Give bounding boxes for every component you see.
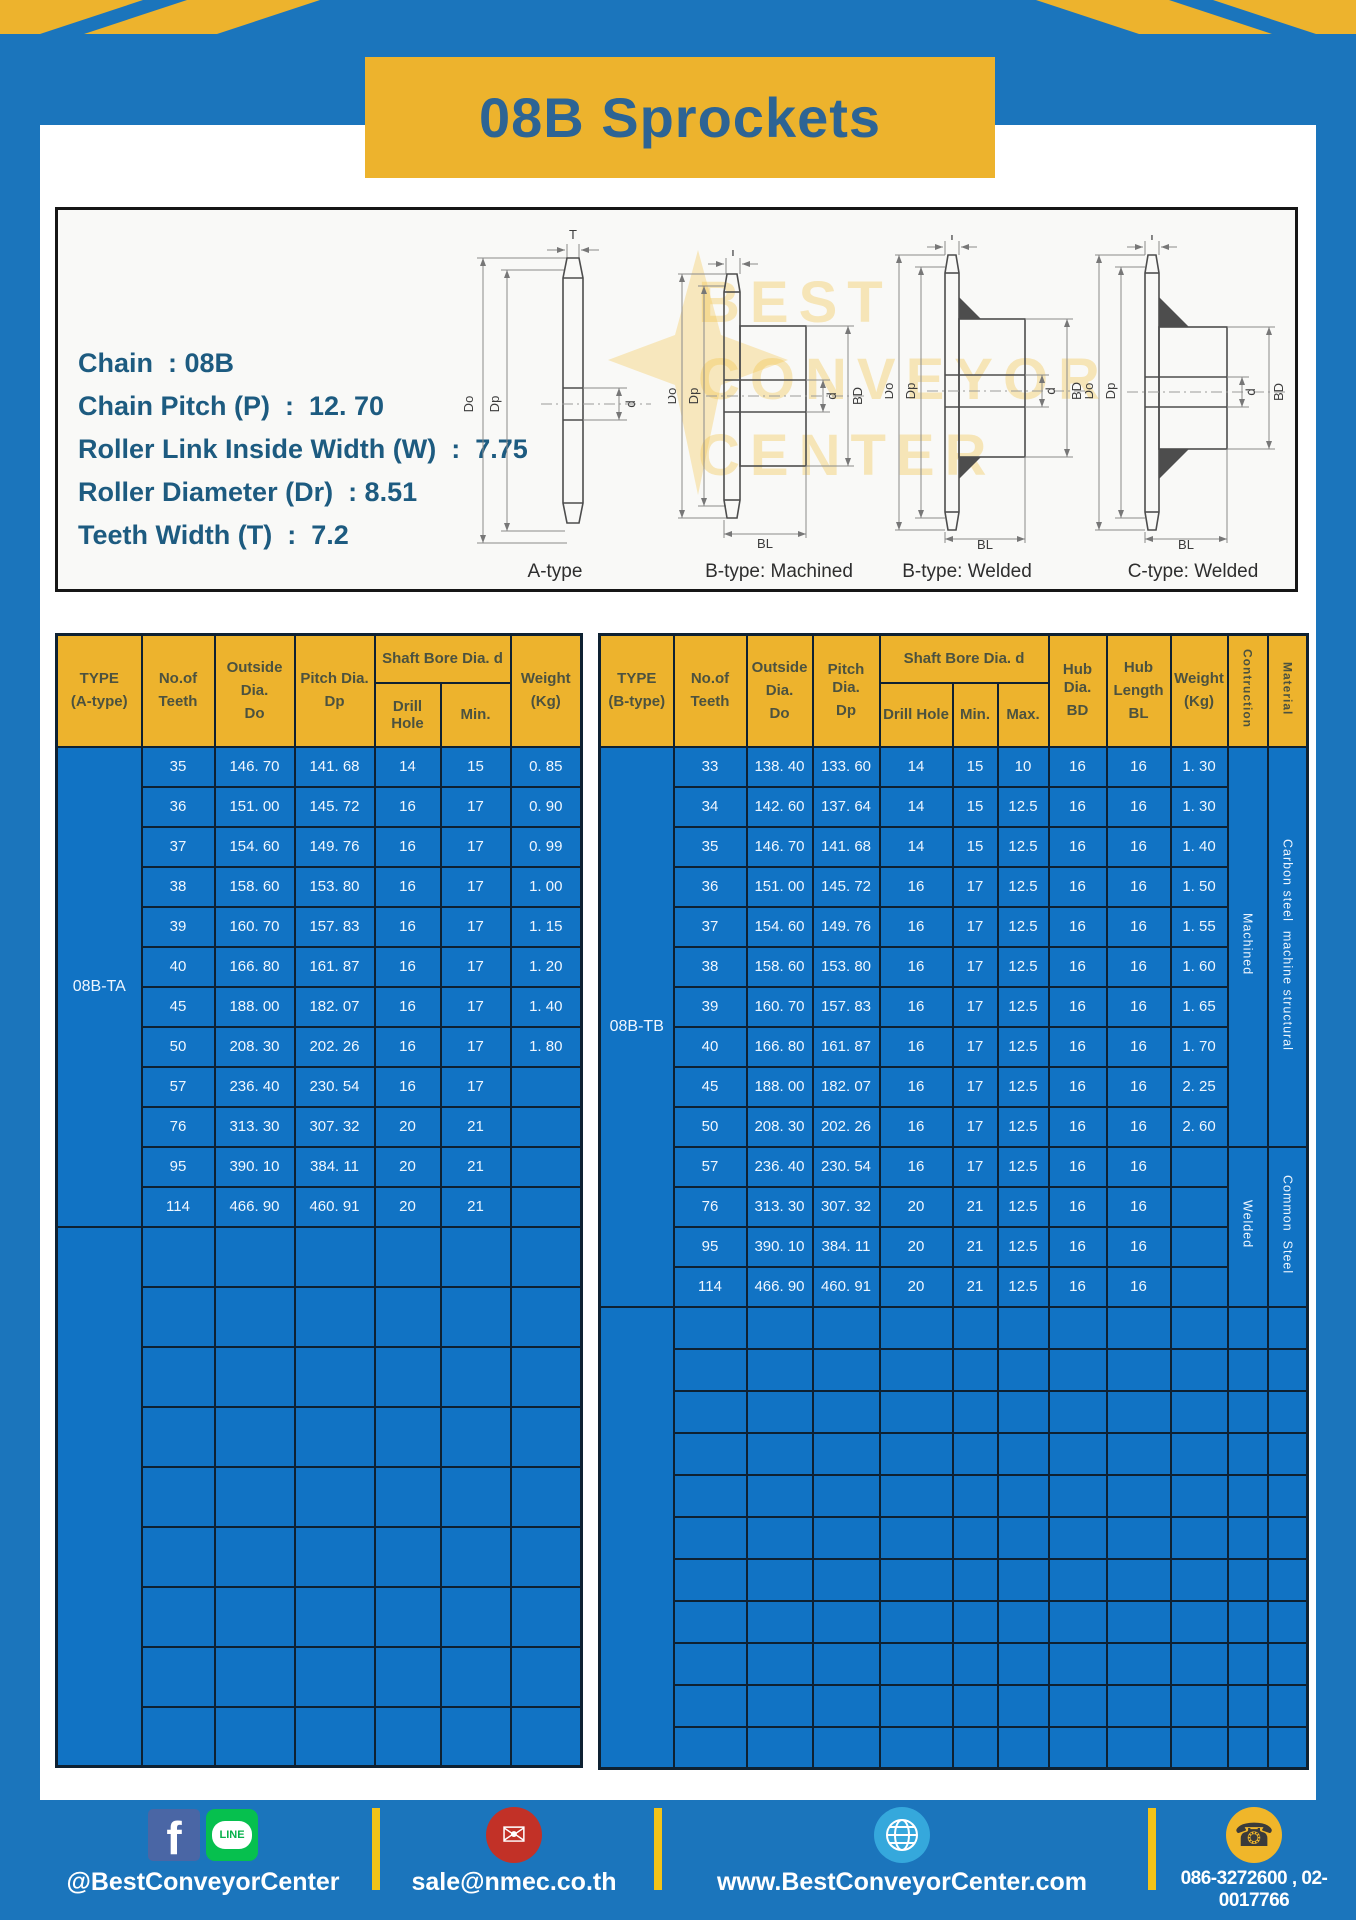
cell: 182. 07 — [813, 1067, 880, 1107]
empty-cell — [953, 1433, 998, 1475]
empty-cell — [295, 1407, 375, 1467]
caption-c-welded: C-type: Welded — [1108, 561, 1278, 583]
cell: 16 — [1049, 1147, 1107, 1187]
cell: 40 — [674, 1027, 747, 1067]
empty-cell — [1171, 1391, 1228, 1433]
empty-cell — [215, 1587, 295, 1647]
cell: 154. 60 — [747, 907, 813, 947]
cell: 390. 10 — [747, 1227, 813, 1267]
sprocket-drawing-c-welded: Do Dp T d BD BL — [1085, 235, 1300, 550]
cell: 16 — [1107, 1267, 1171, 1307]
cell: 45 — [142, 987, 215, 1027]
empty-cell — [880, 1517, 953, 1559]
empty-row — [600, 1601, 1308, 1643]
page-canvas: 08B Sprockets BEST CONVEYOR CENTER Chain… — [0, 0, 1356, 1920]
cell: 0. 99 — [511, 827, 582, 867]
material-cell: Common Steel — [1268, 1147, 1308, 1307]
cell: 16 — [375, 1027, 441, 1067]
cell: 16 — [1107, 867, 1171, 907]
empty-cell — [511, 1587, 582, 1647]
cell: 21 — [441, 1187, 511, 1227]
empty-cell — [1171, 1685, 1228, 1727]
empty-cell — [747, 1475, 813, 1517]
empty-cell — [375, 1467, 441, 1527]
table-b-container: TYPE(B-type) No.ofTeeth OutsideDia.Do Pi… — [598, 633, 1309, 1770]
cell: 16 — [1049, 907, 1107, 947]
empty-cell — [953, 1643, 998, 1685]
title-banner: 08B Sprockets — [365, 57, 995, 178]
cell: 16 — [1049, 747, 1107, 787]
sprocket-drawing-a-type: Do Dp T d — [455, 228, 685, 553]
empty-cell — [747, 1517, 813, 1559]
empty-row — [600, 1559, 1308, 1601]
empty-row — [600, 1433, 1308, 1475]
cell: 236. 40 — [747, 1147, 813, 1187]
page-title: 08B Sprockets — [479, 85, 881, 150]
empty-cell — [142, 1647, 215, 1707]
cell: 236. 40 — [215, 1067, 295, 1107]
empty-cell — [674, 1643, 747, 1685]
svg-text:BL: BL — [757, 536, 773, 550]
empty-cell — [1268, 1643, 1308, 1685]
empty-cell — [813, 1307, 880, 1349]
svg-text:d: d — [824, 392, 839, 399]
empty-cell — [953, 1349, 998, 1391]
cell: 16 — [880, 1107, 953, 1147]
empty-cell — [1171, 1643, 1228, 1685]
svg-text:T: T — [729, 250, 737, 259]
footer-phone-section: ☎ 086-3272600 , 02-0017766 — [1152, 1806, 1356, 1912]
empty-cell — [441, 1527, 511, 1587]
cell: 149. 76 — [295, 827, 375, 867]
cell: 16 — [375, 907, 441, 947]
cell: 17 — [953, 907, 998, 947]
cell: 17 — [441, 987, 511, 1027]
cell: 16 — [375, 1067, 441, 1107]
cell: 16 — [1049, 827, 1107, 867]
cell: 40 — [142, 947, 215, 987]
empty-cell — [880, 1307, 953, 1349]
empty-cell — [441, 1287, 511, 1347]
empty-row — [57, 1227, 582, 1287]
cell: 17 — [953, 1107, 998, 1147]
social-handle: @BestConveyorCenter — [40, 1868, 366, 1897]
type-label-cell: 08B-TB — [600, 747, 674, 1307]
cell: 12.5 — [998, 1067, 1049, 1107]
empty-cell — [511, 1467, 582, 1527]
empty-cell — [511, 1707, 582, 1767]
cell: 20 — [375, 1147, 441, 1187]
empty-cell — [1268, 1307, 1308, 1349]
cell: 16 — [880, 1147, 953, 1187]
cell: 188. 00 — [747, 1067, 813, 1107]
cell: 137. 64 — [813, 787, 880, 827]
cell: 35 — [142, 747, 215, 787]
empty-cell — [813, 1349, 880, 1391]
empty-cell — [880, 1391, 953, 1433]
empty-cell — [1171, 1517, 1228, 1559]
footer-divider — [654, 1808, 662, 1890]
empty-cell — [511, 1407, 582, 1467]
col-header-pitch-dia: Pitch Dia.Dp — [813, 635, 880, 747]
col-header-type: TYPE(A-type) — [57, 635, 142, 747]
empty-cell — [1171, 1349, 1228, 1391]
cell: 202. 26 — [813, 1107, 880, 1147]
empty-cell — [511, 1647, 582, 1707]
cell: 16 — [1107, 787, 1171, 827]
empty-cell — [215, 1347, 295, 1407]
cell: 161. 87 — [813, 1027, 880, 1067]
cell: 76 — [142, 1107, 215, 1147]
cell: 16 — [1049, 1027, 1107, 1067]
caption-b-machined: B-type: Machined — [689, 561, 869, 583]
cell: 16 — [375, 787, 441, 827]
cell: 16 — [1107, 947, 1171, 987]
phone-numbers: 086-3272600 , 02-0017766 — [1152, 1868, 1356, 1912]
cell: 154. 60 — [215, 827, 295, 867]
footer-website-section: www.BestConveyorCenter.com — [662, 1806, 1142, 1897]
empty-cell — [674, 1307, 747, 1349]
cell: 16 — [1107, 1147, 1171, 1187]
empty-cell — [1107, 1643, 1171, 1685]
empty-cell — [953, 1559, 998, 1601]
empty-cell — [511, 1287, 582, 1347]
cell: 16 — [1049, 787, 1107, 827]
empty-cell — [1228, 1685, 1268, 1727]
corner-stripes — [0, 0, 1356, 40]
cell: 37 — [674, 907, 747, 947]
empty-cell — [813, 1475, 880, 1517]
cell: 12.5 — [998, 1107, 1049, 1147]
cell: 34 — [674, 787, 747, 827]
svg-text:T: T — [1148, 235, 1156, 243]
cell: 16 — [1107, 1107, 1171, 1147]
empty-cell — [295, 1587, 375, 1647]
cell: 16 — [1107, 747, 1171, 787]
cell: 17 — [441, 827, 511, 867]
empty-cell — [375, 1707, 441, 1767]
empty-cell — [142, 1407, 215, 1467]
table-row: 34142. 60137. 64141512.516161. 30 — [600, 787, 1308, 827]
cell: 35 — [674, 827, 747, 867]
cell: 16 — [1049, 947, 1107, 987]
empty-cell — [1268, 1601, 1308, 1643]
col-header-shaft-bore: Shaft Bore Dia. d — [375, 635, 511, 683]
cell — [1171, 1267, 1228, 1307]
empty-cell — [1049, 1685, 1107, 1727]
table-row: 08B-TB33138. 40133. 6014151016161. 30Mac… — [600, 747, 1308, 787]
empty-cell — [295, 1707, 375, 1767]
cell: 12.5 — [998, 827, 1049, 867]
col-header-min: Min. — [441, 683, 511, 747]
col-header-weight: Weight(Kg) — [1171, 635, 1228, 747]
cell: 1. 55 — [1171, 907, 1228, 947]
empty-cell — [674, 1475, 747, 1517]
empty-cell — [998, 1601, 1049, 1643]
empty-cell — [674, 1349, 747, 1391]
cell: 1. 80 — [511, 1027, 582, 1067]
caption-a-type: A-type — [485, 561, 625, 583]
empty-row — [600, 1391, 1308, 1433]
cell: 16 — [880, 987, 953, 1027]
cell: 33 — [674, 747, 747, 787]
empty-cell — [998, 1517, 1049, 1559]
cell: 12.5 — [998, 1227, 1049, 1267]
header-row: TYPE(A-type) No.ofTeeth OutsideDia.Do Pi… — [57, 635, 582, 683]
construction-cell: Machined — [1228, 747, 1268, 1147]
email-address: sale@nmec.co.th — [380, 1868, 648, 1897]
col-header-teeth: No.ofTeeth — [142, 635, 215, 747]
empty-cell — [1268, 1727, 1308, 1769]
cell: 160. 70 — [747, 987, 813, 1027]
cell: 166. 80 — [747, 1027, 813, 1067]
empty-cell — [674, 1433, 747, 1475]
empty-cell — [880, 1559, 953, 1601]
cell: 158. 60 — [215, 867, 295, 907]
material-cell: Carbon steel machine structural — [1268, 747, 1308, 1147]
empty-cell — [998, 1643, 1049, 1685]
empty-cell — [998, 1685, 1049, 1727]
cell: 166. 80 — [215, 947, 295, 987]
cell: 16 — [880, 907, 953, 947]
cell: 151. 00 — [215, 787, 295, 827]
cell — [1171, 1227, 1228, 1267]
empty-cell — [142, 1527, 215, 1587]
empty-cell — [375, 1227, 441, 1287]
cell — [1171, 1187, 1228, 1227]
cell: 16 — [880, 867, 953, 907]
empty-cell — [215, 1647, 295, 1707]
cell: 95 — [674, 1227, 747, 1267]
cell: 230. 54 — [813, 1147, 880, 1187]
empty-cell — [747, 1433, 813, 1475]
cell: 16 — [375, 867, 441, 907]
empty-cell — [880, 1643, 953, 1685]
cell: 157. 83 — [813, 987, 880, 1027]
empty-cell — [747, 1307, 813, 1349]
empty-cell — [295, 1227, 375, 1287]
empty-cell — [142, 1707, 215, 1767]
empty-cell — [295, 1647, 375, 1707]
empty-cell — [747, 1601, 813, 1643]
cell: 188. 00 — [215, 987, 295, 1027]
empty-cell — [813, 1727, 880, 1769]
empty-cell — [1049, 1601, 1107, 1643]
cell: 16 — [1107, 1227, 1171, 1267]
cell: 39 — [674, 987, 747, 1027]
footer-bar: f LINE @BestConveyorCenter ✉ sale@nmec.c… — [0, 1800, 1356, 1920]
empty-cell — [747, 1559, 813, 1601]
cell: 10 — [998, 747, 1049, 787]
empty-cell — [747, 1685, 813, 1727]
empty-cell — [441, 1227, 511, 1287]
empty-cell — [813, 1517, 880, 1559]
cell: 0. 85 — [511, 747, 582, 787]
cell: 1. 15 — [511, 907, 582, 947]
table-row: 35146. 70141. 68141512.516161. 40 — [600, 827, 1308, 867]
empty-cell — [953, 1685, 998, 1727]
cell: 2. 25 — [1171, 1067, 1228, 1107]
empty-cell — [1049, 1517, 1107, 1559]
svg-text:BD: BD — [1069, 382, 1084, 400]
cell: 12.5 — [998, 787, 1049, 827]
empty-row — [600, 1307, 1308, 1349]
empty-cell — [441, 1647, 511, 1707]
empty-cell — [1268, 1475, 1308, 1517]
empty-cell — [1107, 1685, 1171, 1727]
svg-text:BL: BL — [977, 537, 993, 550]
cell: 114 — [142, 1187, 215, 1227]
phone-icon[interactable]: ☎ — [1226, 1807, 1282, 1863]
cell: 20 — [880, 1267, 953, 1307]
cell: 16 — [375, 947, 441, 987]
empty-cell — [1107, 1727, 1171, 1769]
empty-cell — [953, 1727, 998, 1769]
empty-cell — [142, 1587, 215, 1647]
cell: 466. 90 — [747, 1267, 813, 1307]
table-row: 76313. 30307. 32202112.51616 — [600, 1187, 1308, 1227]
empty-cell — [953, 1475, 998, 1517]
cell: 20 — [880, 1187, 953, 1227]
empty-cell — [142, 1347, 215, 1407]
empty-cell — [1228, 1601, 1268, 1643]
empty-cell — [1107, 1307, 1171, 1349]
cell: 17 — [441, 787, 511, 827]
email-icon[interactable]: ✉ — [486, 1807, 542, 1863]
line-icon[interactable]: LINE — [206, 1809, 258, 1861]
cell: 17 — [441, 1027, 511, 1067]
cell: 1. 40 — [1171, 827, 1228, 867]
cell: 313. 30 — [215, 1107, 295, 1147]
empty-cell — [215, 1227, 295, 1287]
cell: 208. 30 — [747, 1107, 813, 1147]
cell: 20 — [375, 1107, 441, 1147]
cell: 182. 07 — [295, 987, 375, 1027]
empty-cell — [674, 1559, 747, 1601]
empty-cell — [1228, 1433, 1268, 1475]
empty-cell — [215, 1407, 295, 1467]
svg-text:BD: BD — [850, 387, 865, 405]
cell: 16 — [1107, 1027, 1171, 1067]
col-header-max: Max. — [998, 683, 1049, 747]
cell: 230. 54 — [295, 1067, 375, 1107]
empty-cell — [1049, 1475, 1107, 1517]
cell: 466. 90 — [215, 1187, 295, 1227]
empty-cell — [1171, 1601, 1228, 1643]
type-label-cell: 08B-TA — [57, 747, 142, 1227]
table-row: 114466. 90460. 91202112.51616 — [600, 1267, 1308, 1307]
empty-cell — [1171, 1307, 1228, 1349]
cell: 1. 30 — [1171, 787, 1228, 827]
cell: 1. 60 — [1171, 947, 1228, 987]
cell: 0. 90 — [511, 787, 582, 827]
globe-icon[interactable] — [874, 1807, 930, 1863]
empty-row — [600, 1685, 1308, 1727]
empty-cell — [1171, 1475, 1228, 1517]
cell: 14 — [375, 747, 441, 787]
col-header-pitch-dia: Pitch Dia.Dp — [295, 635, 375, 747]
cell: 17 — [953, 867, 998, 907]
empty-cell — [1268, 1433, 1308, 1475]
table-row: 57236. 40230. 54161712.51616WeldedCommon… — [600, 1147, 1308, 1187]
empty-cell — [215, 1287, 295, 1347]
empty-cell — [880, 1727, 953, 1769]
cell: 45 — [674, 1067, 747, 1107]
construction-cell: Welded — [1228, 1147, 1268, 1307]
empty-row — [600, 1349, 1308, 1391]
empty-cell — [441, 1587, 511, 1647]
cell: 21 — [441, 1147, 511, 1187]
cell: 12.5 — [998, 947, 1049, 987]
svg-text:Do: Do — [885, 383, 896, 400]
cell: 157. 83 — [295, 907, 375, 947]
cell: 16 — [1107, 907, 1171, 947]
cell: 145. 72 — [813, 867, 880, 907]
empty-cell — [375, 1587, 441, 1647]
table-row: 40166. 80161. 87161712.516161. 70 — [600, 1027, 1308, 1067]
col-header-outside-dia: OutsideDia.Do — [747, 635, 813, 747]
facebook-icon[interactable]: f — [148, 1809, 200, 1861]
table-row: 38158. 60153. 80161712.516161. 60 — [600, 947, 1308, 987]
svg-text:Dp: Dp — [686, 388, 701, 405]
empty-cell — [1171, 1559, 1228, 1601]
cell: 2. 60 — [1171, 1107, 1228, 1147]
cell: 21 — [953, 1227, 998, 1267]
cell: 12.5 — [998, 1147, 1049, 1187]
cell: 16 — [880, 1027, 953, 1067]
cell: 141. 68 — [813, 827, 880, 867]
empty-cell — [813, 1685, 880, 1727]
empty-cell — [674, 1727, 747, 1769]
empty-cell — [998, 1433, 1049, 1475]
empty-cell — [375, 1347, 441, 1407]
empty-cell — [375, 1527, 441, 1587]
cell: 50 — [674, 1107, 747, 1147]
empty-cell — [1107, 1391, 1171, 1433]
cell: 460. 91 — [813, 1267, 880, 1307]
empty-cell — [1049, 1349, 1107, 1391]
empty-cell — [953, 1307, 998, 1349]
empty-cell — [295, 1527, 375, 1587]
cell: 208. 30 — [215, 1027, 295, 1067]
empty-cell — [375, 1287, 441, 1347]
cell: 15 — [953, 787, 998, 827]
cell: 12.5 — [998, 987, 1049, 1027]
empty-cell — [215, 1707, 295, 1767]
cell: 16 — [1049, 1187, 1107, 1227]
cell: 17 — [441, 867, 511, 907]
cell: 36 — [674, 867, 747, 907]
empty-cell — [375, 1647, 441, 1707]
cell: 146. 70 — [747, 827, 813, 867]
cell: 15 — [953, 747, 998, 787]
empty-cell — [142, 1287, 215, 1347]
cell: 17 — [953, 1027, 998, 1067]
cell: 17 — [953, 1067, 998, 1107]
svg-text:Do: Do — [461, 396, 476, 413]
table-row: 50208. 30202. 26161712.516162. 60 — [600, 1107, 1308, 1147]
empty-cell — [511, 1347, 582, 1407]
cell: 17 — [441, 1067, 511, 1107]
empty-cell — [998, 1727, 1049, 1769]
empty-cell — [1268, 1391, 1308, 1433]
cell: 384. 11 — [813, 1227, 880, 1267]
cell: 16 — [1107, 1187, 1171, 1227]
table-row: 45188. 00182. 07161712.516162. 25 — [600, 1067, 1308, 1107]
empty-cell — [441, 1467, 511, 1527]
cell: 16 — [1107, 827, 1171, 867]
svg-text:BD: BD — [1271, 383, 1286, 401]
